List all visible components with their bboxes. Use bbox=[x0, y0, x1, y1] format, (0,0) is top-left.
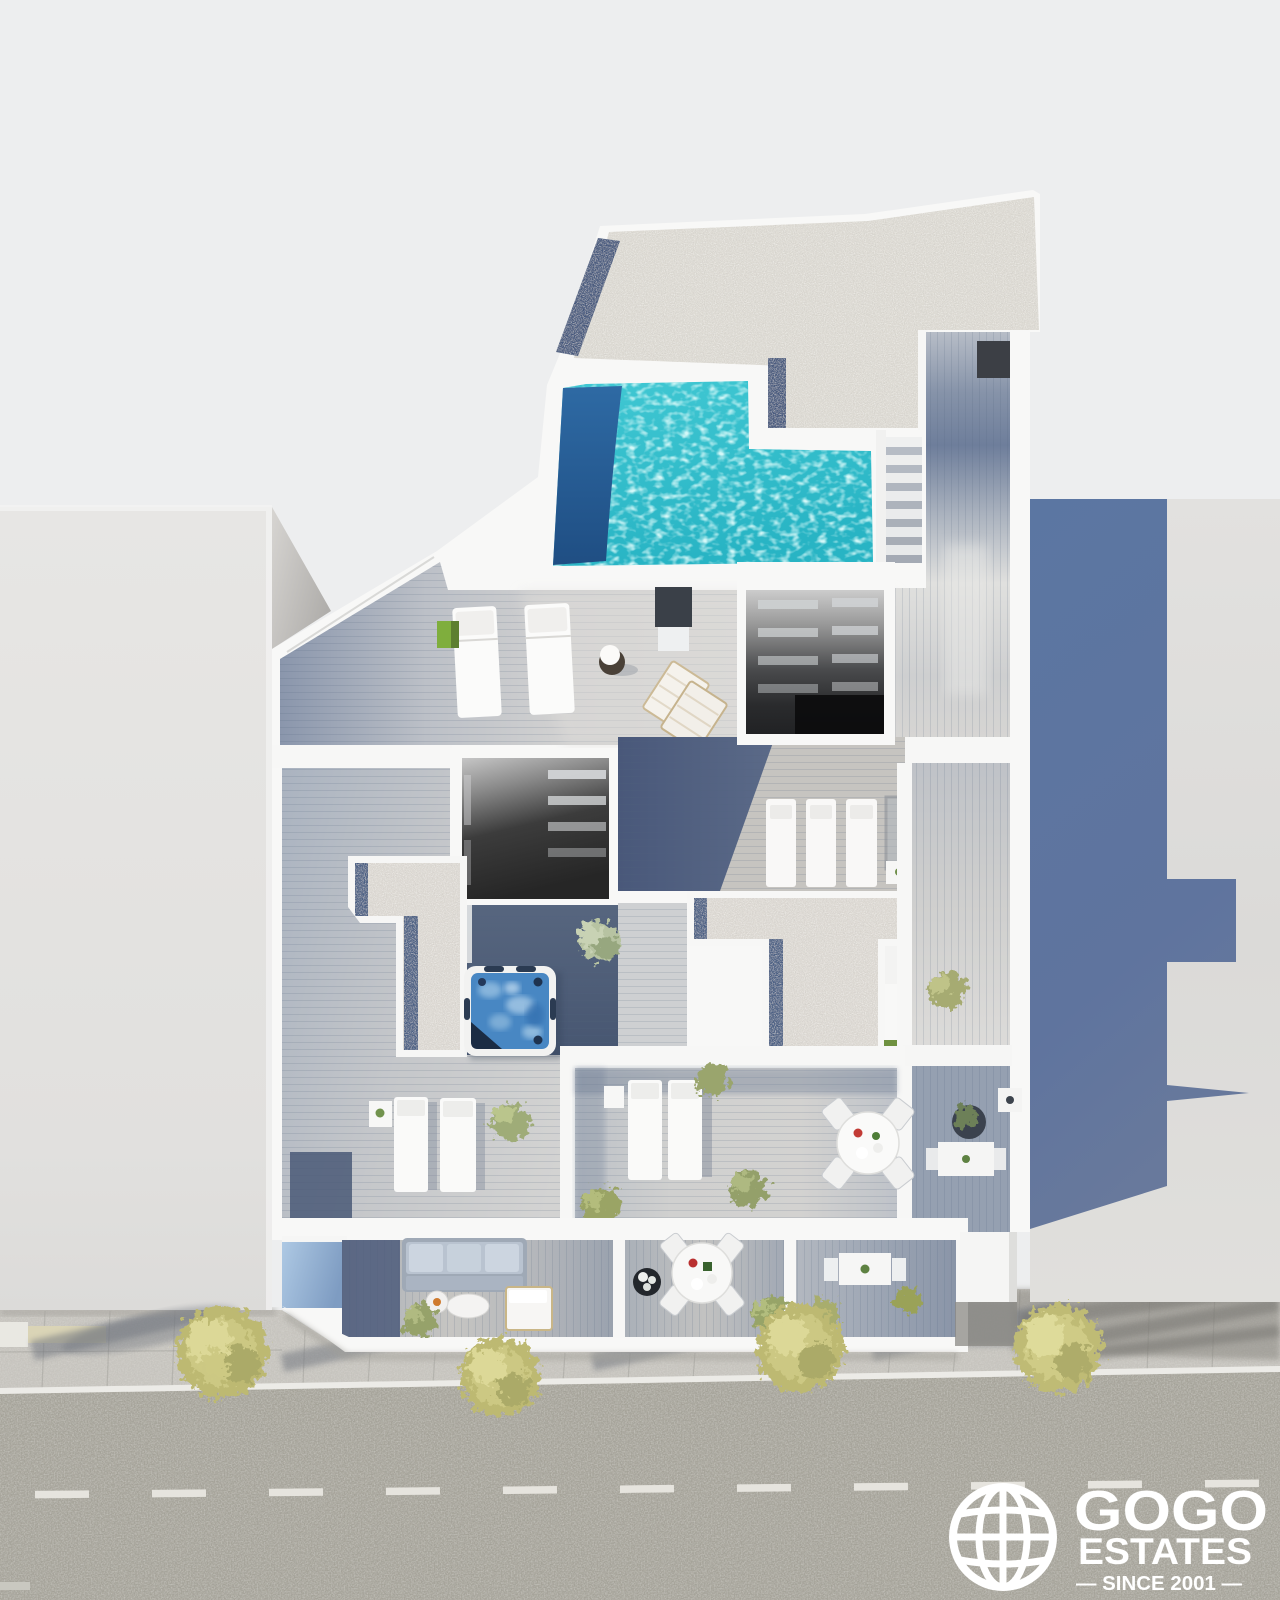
svg-text:— SINCE 2001 —: — SINCE 2001 — bbox=[1076, 1573, 1242, 1595]
svg-text:ESTATES: ESTATES bbox=[1078, 1531, 1252, 1572]
